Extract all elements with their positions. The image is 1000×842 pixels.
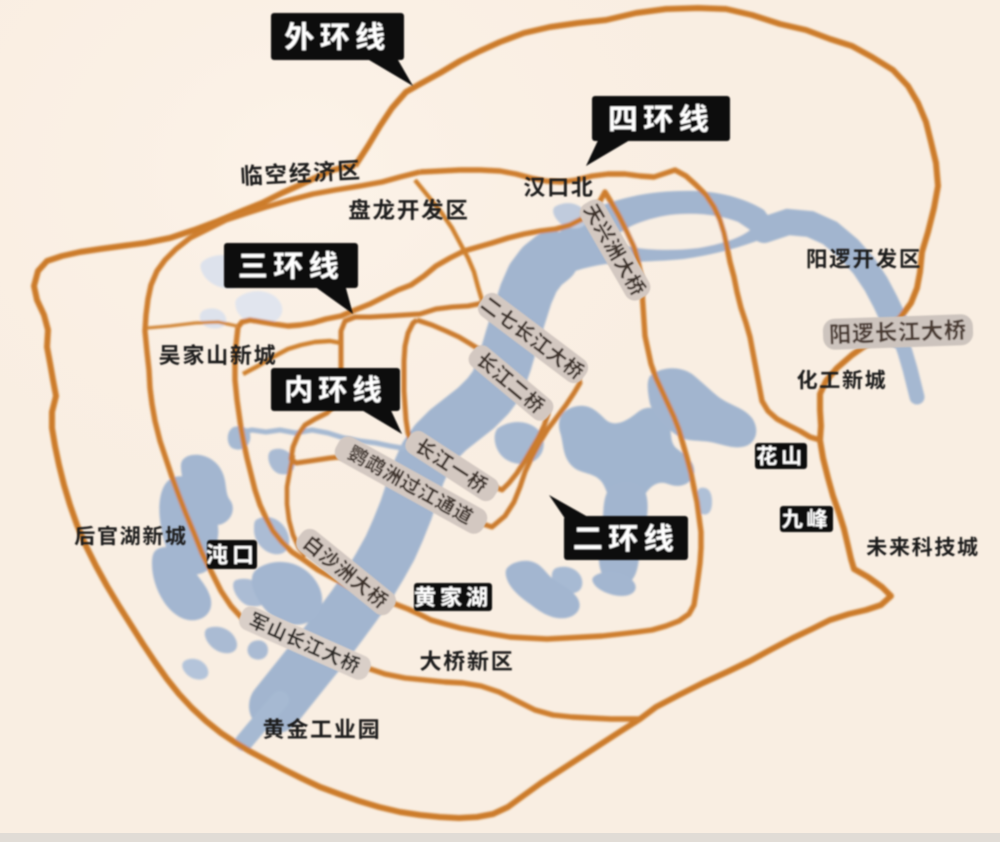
svg-text:花山: 花山 — [756, 441, 806, 471]
svg-text:三环线: 三环线 — [238, 241, 344, 285]
svg-text:沌口: 沌口 — [206, 537, 258, 569]
svg-text:后官湖新城: 后官湖新城 — [74, 521, 187, 551]
svg-text:外环线: 外环线 — [284, 12, 390, 56]
svg-text:四环线: 四环线 — [608, 94, 714, 138]
svg-text:内环线: 内环线 — [284, 367, 387, 409]
svg-text:临空经济区: 临空经济区 — [239, 153, 362, 191]
svg-text:黄金工业园: 黄金工业园 — [263, 712, 382, 744]
svg-text:吴家山新城: 吴家山新城 — [159, 338, 278, 370]
svg-text:阳逻开发区: 阳逻开发区 — [806, 243, 922, 274]
svg-text:九峰: 九峰 — [782, 504, 832, 534]
svg-text:黄家湖: 黄家湖 — [414, 580, 492, 612]
svg-text:二环线: 二环线 — [573, 514, 679, 558]
svg-text:汉口北: 汉口北 — [523, 170, 594, 202]
svg-text:阳逻长江大桥: 阳逻长江大桥 — [828, 313, 967, 350]
svg-text:盘龙开发区: 盘龙开发区 — [348, 193, 470, 225]
svg-text:大桥新区: 大桥新区 — [419, 644, 514, 676]
svg-text:化工新城: 化工新城 — [797, 365, 888, 395]
svg-text:未来科技城: 未来科技城 — [866, 532, 979, 562]
